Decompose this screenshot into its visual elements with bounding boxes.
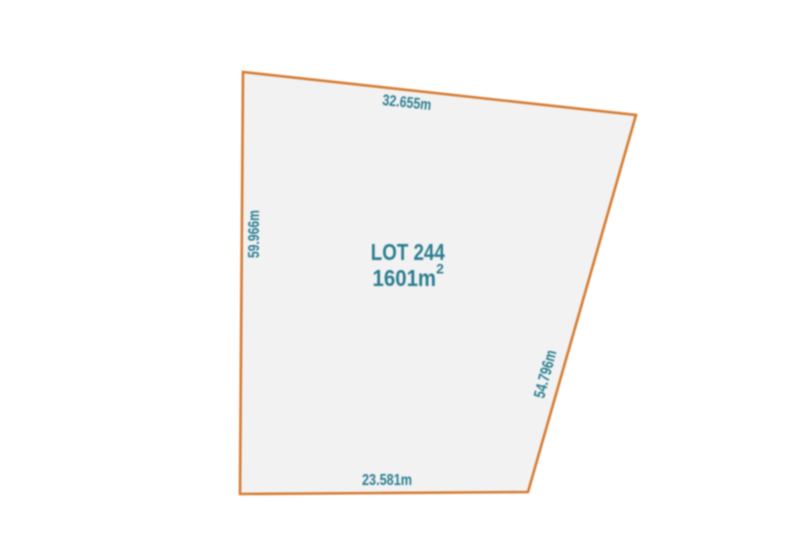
svg-text:23.581m: 23.581m (362, 472, 412, 489)
svg-text:LOT 244: LOT 244 (371, 239, 445, 265)
svg-text:59.966m: 59.966m (246, 210, 263, 258)
svg-text:1601m: 1601m (373, 265, 437, 291)
svg-text:2: 2 (436, 261, 444, 277)
